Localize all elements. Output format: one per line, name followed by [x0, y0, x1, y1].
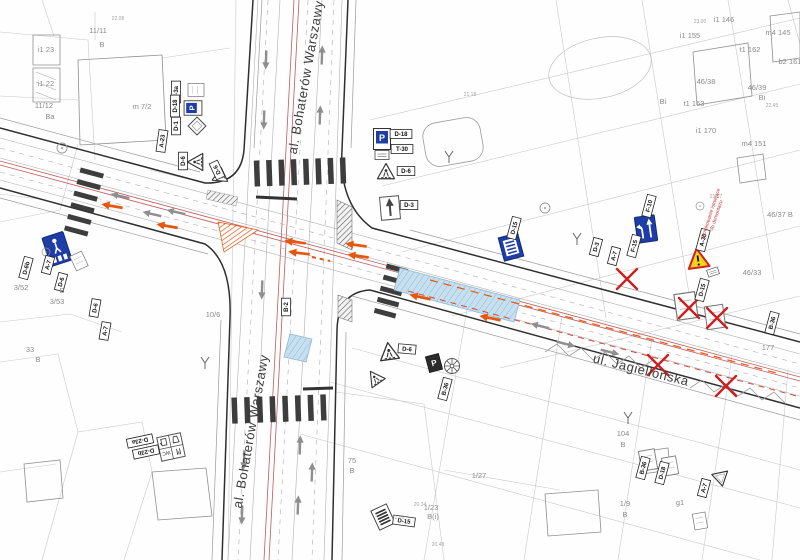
parcel-label: m4 145 — [765, 28, 790, 37]
parcel-label: g1 — [676, 498, 684, 507]
parcel-label: m4 151 — [741, 139, 766, 148]
cadastral-line — [444, 470, 560, 490]
pole-sign-icon — [445, 151, 453, 163]
building-outline — [545, 490, 601, 536]
traffic-plan-canvas: P P — [0, 0, 800, 560]
lane-arrow — [260, 110, 268, 129]
sign-code-label: B-2 — [282, 298, 291, 316]
elevation-label: 20.48 — [432, 542, 445, 548]
sign-code-label: D-1 — [172, 117, 181, 135]
elevation-label: 22.45 — [766, 103, 779, 109]
cadastral-line — [300, 434, 760, 560]
parcel-label: b2 161 — [779, 57, 800, 66]
tri-crossing-sign-icon — [378, 341, 399, 360]
lane-line — [312, 0, 334, 560]
parcel-label: 46/38 — [697, 77, 716, 86]
sign-code-label: D-23b — [132, 445, 159, 459]
sign-code-label: D-6 — [397, 167, 415, 176]
zebra-bar — [295, 395, 301, 421]
new-lane-arrow — [288, 248, 310, 259]
cadastral-line — [42, 354, 78, 560]
road-edge — [0, 0, 253, 183]
svg-text:B-2: B-2 — [284, 302, 290, 312]
zebra-bar — [315, 158, 321, 184]
cadastral-line — [162, 48, 230, 58]
parcel-label: 10/6 — [206, 310, 221, 319]
lane-arrow — [308, 462, 316, 481]
sign-code-label: D-3 — [589, 237, 602, 256]
parking-dark-sign-icon — [425, 353, 442, 372]
sign-code-label: D-6 — [179, 152, 188, 170]
parcel-label: B — [349, 466, 354, 475]
cadastral-line — [788, 0, 800, 44]
lane-arrow — [262, 50, 270, 69]
zebra-bar — [303, 159, 309, 185]
arrow-sign-sign-icon — [380, 196, 401, 221]
zebra-bar — [70, 202, 94, 213]
sidewalk-edge — [212, 320, 221, 560]
pond-outline — [543, 28, 657, 108]
cadastral-line — [642, 0, 690, 300]
parcel-label: B — [99, 40, 104, 49]
street-name-label: al. Bohaterów Warszawy — [285, 0, 327, 155]
parcel-label: i1 170 — [696, 126, 716, 135]
sidewalk-edge — [342, 332, 346, 560]
zebra-crossing — [64, 168, 104, 237]
tri-crossing-sign-icon — [187, 153, 202, 170]
pole-sign-icon — [201, 357, 209, 369]
parcel-label: t1 162 — [740, 45, 761, 54]
sign-code-label: T-30 — [391, 145, 413, 154]
lane-arrow — [556, 338, 576, 350]
new-marking-hatch — [218, 222, 258, 252]
zebra-bar — [282, 396, 288, 422]
box-sign-sign-icon — [70, 251, 88, 271]
sidewalk-edge — [0, 118, 200, 172]
svg-text:D-1: D-1 — [174, 121, 180, 131]
diamond-sign-icon — [188, 117, 206, 135]
elevation-label: 21.18 — [464, 92, 477, 98]
cadastral-line — [336, 392, 444, 560]
building-outline — [24, 460, 63, 502]
parcel-label: B(i) — [427, 512, 439, 521]
zebra-bar — [308, 395, 314, 421]
elevation-label: 23.00 — [694, 19, 707, 25]
traffic-plan-drawing: P P — [0, 0, 800, 560]
svg-text:D-18: D-18 — [394, 132, 408, 138]
zebra-bar — [320, 394, 326, 420]
annotation-note: Oznakowanie istniejącedo demontażu — [700, 188, 728, 242]
tree-sign-icon — [696, 202, 704, 210]
sidewalk-edge — [410, 230, 800, 334]
axis-line — [264, 0, 294, 560]
cadastral-line — [42, 0, 54, 36]
cadastral-line — [556, 0, 606, 318]
cadastral-line — [402, 150, 800, 252]
elevation-label: 21.01 — [392, 515, 405, 521]
sign-code-label: A-7 — [607, 246, 620, 265]
parcel-label: 11/11 — [89, 26, 107, 35]
parking-sign-icon — [184, 101, 202, 115]
parcel-label: 46/39 — [748, 83, 767, 92]
new-lane-arrow — [156, 220, 179, 232]
svg-text:D-6: D-6 — [402, 347, 413, 354]
bike-crossing-surface — [284, 334, 312, 362]
cadastral-line — [370, 18, 800, 120]
zebra-bar — [291, 159, 297, 185]
parcel-label: 11/12 — [35, 101, 53, 110]
zebra-bar — [73, 191, 97, 202]
parcel-label: 75 — [348, 456, 356, 465]
cadastral-line — [0, 354, 58, 362]
zebra-bar — [278, 160, 284, 186]
sign-code-label: D-18 — [390, 130, 412, 139]
svg-text:T-30: T-30 — [396, 147, 409, 153]
zebra-bar — [76, 179, 100, 190]
street-name-label: al. Bohaterów Warszawy — [230, 353, 272, 509]
parcel-label: B — [59, 286, 64, 295]
plate-sign-icon — [707, 267, 720, 277]
sidewalk-edge — [352, 296, 800, 420]
road-edge — [0, 188, 230, 560]
sign-code-label: A-23 — [156, 130, 168, 153]
zebra-crossing — [254, 157, 346, 186]
zebra-bar — [254, 160, 260, 186]
pole-sign-icon — [573, 233, 581, 245]
parking-sign-icon — [374, 129, 391, 150]
parcel-label: B — [35, 355, 40, 364]
sign-code-label: D-6 — [89, 299, 101, 318]
sidewalk-edge — [254, 0, 262, 148]
wheel-sign-icon — [445, 359, 460, 374]
axis-line — [269, 0, 299, 560]
lane-arrow — [296, 435, 304, 454]
zebra-bar — [64, 225, 88, 236]
sign-code-label: D-23a — [126, 434, 153, 448]
lane-arrow — [530, 320, 550, 332]
building-outline — [770, 12, 800, 62]
parcel-label: i1 155 — [680, 31, 700, 40]
zebra-bar — [374, 308, 397, 319]
svg-text:D-18: D-18 — [173, 99, 179, 113]
sign-code-label: B-36 — [438, 377, 452, 400]
parcel-label: t1 163 — [684, 99, 705, 108]
street-name-label: ul. Jagiellońska — [591, 350, 690, 388]
parcel-label: m 7/2 — [133, 102, 152, 111]
services-sign-icon — [157, 433, 185, 461]
sign-code-label: A-7 — [41, 255, 54, 274]
parcel-label: 177 — [762, 343, 775, 352]
stop-line — [303, 388, 333, 389]
red-x-sign-icon — [617, 269, 637, 289]
tree-sign-icon — [540, 203, 550, 213]
tri-crossing-sign-icon — [377, 163, 394, 178]
zebra-bar — [80, 168, 104, 179]
building-outline — [152, 468, 212, 520]
hatched-island — [338, 295, 352, 322]
cadastral-line — [78, 422, 142, 432]
lane-line — [324, 0, 342, 560]
parcel-label: 46/37 B — [767, 210, 793, 219]
lane-arrow — [316, 105, 324, 124]
parcel-label: i1 146 — [714, 15, 734, 24]
parcel-label: 1/9 — [620, 499, 630, 508]
parcel-label: i1 22 — [38, 79, 54, 88]
box-sign-sign-icon — [692, 512, 707, 530]
sign-code-label: B-36 — [765, 311, 779, 334]
sidewalk-edge — [0, 198, 208, 254]
stop-line — [256, 197, 297, 199]
parcel-label: Bi — [759, 93, 766, 102]
lane-line — [0, 158, 800, 374]
sign-code-label: D-6 — [398, 344, 416, 354]
parking-bay-outline — [421, 115, 486, 168]
sign-code-label: B-36 — [636, 456, 650, 479]
svg-text:D-6: D-6 — [181, 156, 187, 166]
sidewalk-edge — [351, 0, 356, 148]
elevation-label: 20.34 — [414, 502, 427, 508]
zebra-bar — [266, 160, 272, 186]
parcel-label: Bi — [660, 97, 667, 106]
plate-sign-icon — [375, 151, 389, 160]
parcel-label: B — [620, 440, 625, 449]
parcel-label: 104 — [617, 429, 630, 438]
sign-code-label: D-15 — [695, 278, 709, 301]
sign-code-label: F-10 — [642, 194, 656, 217]
tri-crossing-sign-icon — [364, 367, 386, 388]
svg-text:D-3: D-3 — [404, 203, 414, 209]
elevation-label: 22.08 — [112, 16, 125, 22]
parcel-label: 1/27 — [472, 471, 487, 480]
cadastral-line — [0, 464, 56, 472]
svg-text:D-6: D-6 — [401, 169, 411, 175]
parcel-label: 33 — [26, 345, 34, 354]
parcel-label: 3/52 — [14, 283, 29, 292]
parcel-label: B — [622, 510, 627, 519]
sign-code-label: D-18 — [171, 95, 180, 117]
zebra-bar — [231, 397, 237, 423]
cadastral-line — [352, 348, 800, 470]
zebra-bar — [67, 214, 91, 225]
sign-code-label: D-6b — [19, 256, 33, 279]
lane-arrow — [142, 208, 162, 219]
new-marking-dash — [312, 257, 330, 261]
cadastral-line — [0, 96, 78, 100]
sign-code-label: F-15 — [627, 234, 641, 257]
parcel-label: 46/33 — [743, 268, 762, 277]
zebra-bar — [269, 396, 275, 422]
sign-code-label: D-3 — [400, 201, 418, 210]
sign-code-label: D-15 — [507, 216, 521, 239]
lane-line — [250, 0, 280, 560]
zebra-bar — [340, 157, 346, 183]
box-sign-sign-icon — [188, 84, 204, 97]
parcel-label: i1 23 — [38, 45, 54, 54]
building-outline — [737, 154, 766, 183]
lane-arrow — [166, 206, 186, 217]
parcel-label: Ba — [45, 112, 55, 121]
zebra-bar — [328, 158, 334, 184]
parcel-label: 3/53 — [50, 297, 65, 306]
